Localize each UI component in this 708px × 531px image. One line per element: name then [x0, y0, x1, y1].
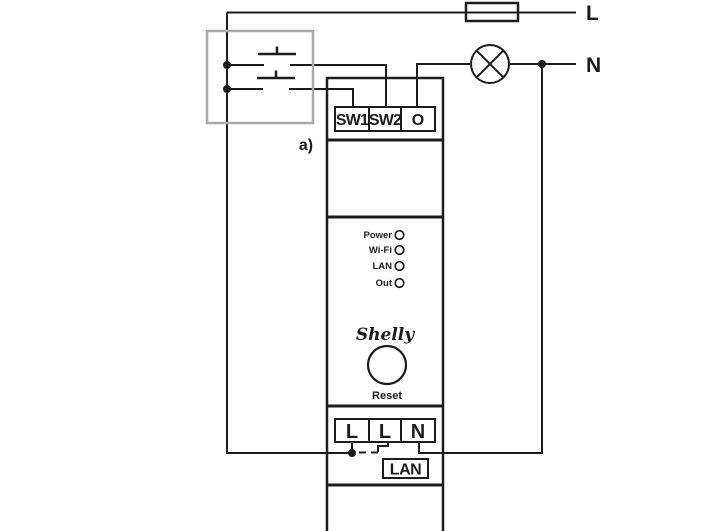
junction-dot — [538, 60, 546, 68]
switch2-to-sw1-wire — [227, 89, 353, 107]
neutral-return-wire — [419, 64, 542, 453]
power-led-label: Power — [363, 230, 392, 241]
terminal-label-o: O — [412, 112, 424, 129]
live-label: L — [586, 2, 599, 25]
junction-dot — [348, 449, 356, 457]
lan-led-icon — [395, 262, 404, 271]
terminal-label-l2: L — [379, 421, 391, 443]
junction-dot — [223, 85, 231, 93]
switch1-to-sw2-wire — [227, 65, 386, 107]
jumper-solid-stub — [378, 442, 388, 452]
device-outline — [327, 78, 443, 531]
lamp-icon — [471, 45, 509, 83]
push-button-switch-1-icon — [258, 47, 296, 55]
terminal-label-l1: L — [346, 421, 358, 443]
push-button-switches — [257, 47, 296, 79]
wiring-diagram: L N a) SW1 SW2 O Power Wi-Fi LAN Out She… — [0, 0, 708, 531]
wifi-led-icon — [395, 246, 404, 255]
neutral-label: N — [586, 54, 601, 77]
terminal-label-sw2: SW2 — [369, 112, 402, 129]
out-led-label: Out — [376, 278, 393, 289]
push-button-switch-2-icon — [257, 71, 295, 79]
reset-button — [368, 346, 406, 384]
lan-led-label: LAN — [372, 261, 392, 272]
led-indicators — [395, 231, 404, 288]
wifi-led-label: Wi-Fi — [369, 245, 392, 256]
out-led-icon — [395, 279, 404, 288]
brand-logo: Shelly — [356, 325, 415, 345]
terminal-label-sw1: SW1 — [336, 112, 369, 129]
lan-port-label: LAN — [390, 462, 421, 479]
junction-dot — [223, 61, 231, 69]
terminal-label-n: N — [411, 421, 425, 443]
reset-label: Reset — [372, 390, 402, 402]
shelly-device — [327, 78, 443, 531]
power-led-icon — [395, 231, 404, 240]
variant-label: a) — [299, 137, 313, 154]
